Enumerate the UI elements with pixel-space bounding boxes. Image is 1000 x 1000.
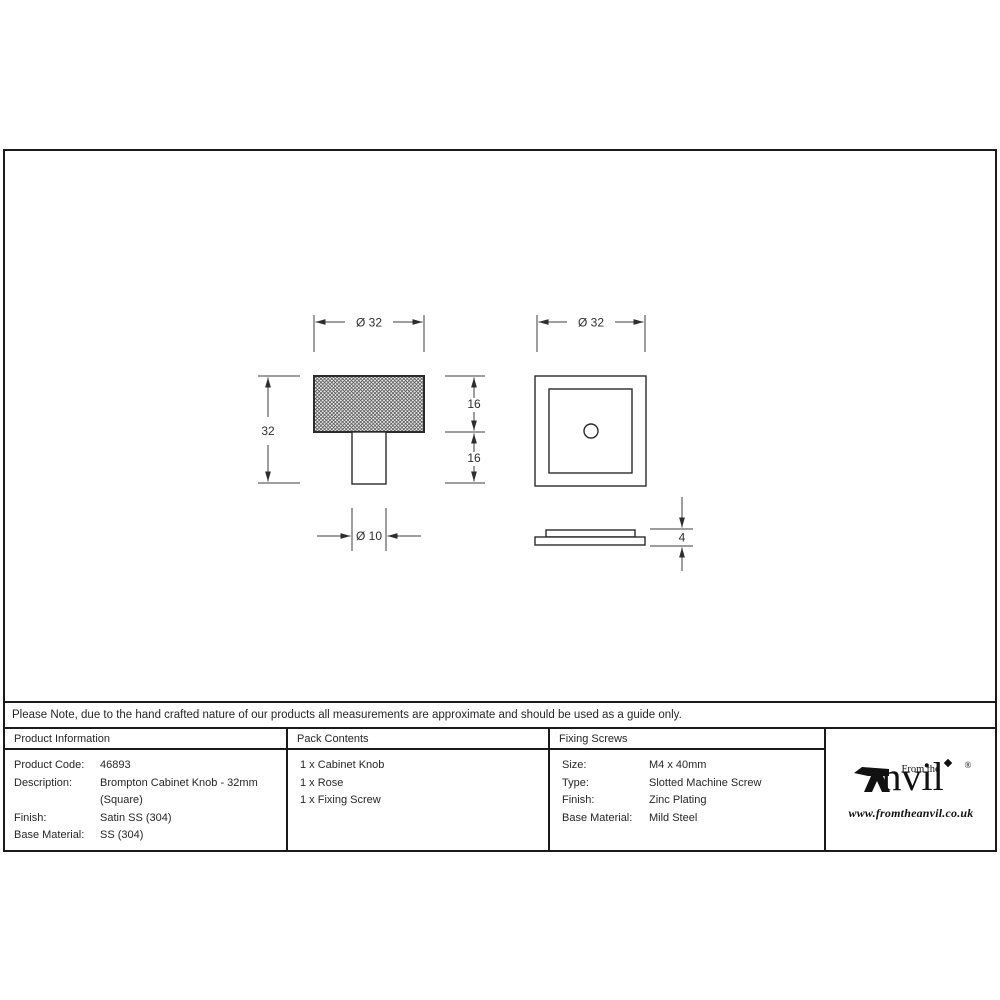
spec-label: Base Material: [14,827,100,845]
spec-label: Finish: [562,792,649,810]
table-row: Base Material: Mild Steel [562,810,818,828]
anvil-logo: From the nvil ® www.fromtheanvil.co.uk [849,760,973,820]
table-row: Type: Slotted Machine Screw [562,775,818,793]
table-row: Product Code: 46893 [14,757,280,775]
product-information-section: Product Information Product Code: 46893 … [5,729,286,850]
dim-label-rose-width: Ø 32 [578,316,604,330]
spec-value: SS (304) [100,827,280,845]
dim-label-stem-depth: 16 [467,451,481,465]
brand-cell: From the nvil ® www.fromtheanvil.co.uk [824,729,995,850]
pack-item: 1 x Rose [300,775,542,793]
spec-label: Base Material: [562,810,649,828]
table-row: Description: Brompton Cabinet Knob - 32m… [14,775,280,810]
spec-value: Mild Steel [649,810,818,828]
spec-value: M4 x 40mm [649,757,818,775]
rose-front-view [535,376,646,486]
section-header-product-information: Product Information [5,729,286,750]
table-row: Size: M4 x 40mm [562,757,818,775]
spec-value: Slotted Machine Screw [649,775,818,793]
rose-side-view [535,530,645,545]
i-dot-diamond-icon [943,758,951,766]
spec-value: 46893 [100,757,280,775]
dim-label-knob-height: 32 [261,424,275,438]
table-row: Finish: Zinc Plating [562,792,818,810]
knob-stem [352,432,386,484]
spec-label: Finish: [14,810,100,828]
knob-head [314,376,424,432]
rose-screw-hole [584,424,598,438]
measurement-note-text: Please Note, due to the hand crafted nat… [12,709,682,721]
pack-contents-body: 1 x Cabinet Knob 1 x Rose 1 x Fixing Scr… [288,750,548,810]
pack-item: 1 x Fixing Screw [300,792,542,810]
spec-label: Type: [562,775,649,793]
spec-label: Product Code: [14,757,100,775]
brand-name: nvil [882,757,944,797]
table-row: Base Material: SS (304) [14,827,280,845]
spec-label: Description: [14,775,100,810]
dim-label-stem-width: Ø 10 [356,529,382,543]
pack-item: 1 x Cabinet Knob [300,757,542,775]
spec-value: Zinc Plating [649,792,818,810]
spec-label: Size: [562,757,649,775]
product-information-body: Product Code: 46893 Description: Brompto… [5,750,286,845]
technical-drawing: Ø 32 32 16 16 Ø 10 Ø 32 4 [240,305,710,580]
registered-mark: ® [965,760,972,770]
dim-label-rose-thickness: 4 [679,531,686,545]
brand-url: www.fromtheanvil.co.uk [849,806,973,821]
dim-label-knob-width: Ø 32 [356,316,382,330]
section-header-fixing-screws: Fixing Screws [550,729,824,750]
spec-value: Brompton Cabinet Knob - 32mm (Square) [100,775,280,810]
dim-label-head-depth: 16 [467,397,481,411]
measurement-note-row: Please Note, due to the hand crafted nat… [3,701,997,729]
fixing-screws-body: Size: M4 x 40mm Type: Slotted Machine Sc… [550,750,824,827]
fixing-screws-section: Fixing Screws Size: M4 x 40mm Type: Slot… [548,729,824,850]
section-header-pack-contents: Pack Contents [288,729,548,750]
table-row: Finish: Satin SS (304) [14,810,280,828]
spec-table: Product Information Product Code: 46893 … [5,729,995,850]
pack-contents-section: Pack Contents 1 x Cabinet Knob 1 x Rose … [286,729,548,850]
spec-value: Satin SS (304) [100,810,280,828]
knob-front-view [314,376,424,484]
